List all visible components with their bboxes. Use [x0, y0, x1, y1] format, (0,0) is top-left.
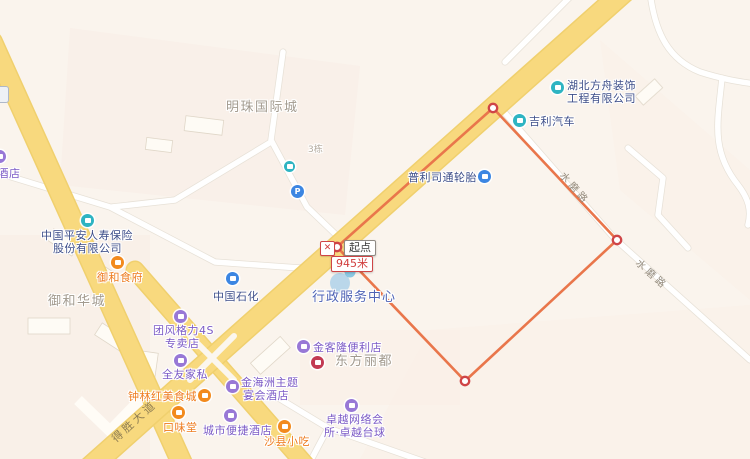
convenience-store-icon	[297, 340, 310, 353]
gas-station-icon	[226, 272, 239, 285]
billiards-icon	[345, 399, 358, 412]
measure-distance-tag: 945米	[331, 256, 373, 272]
furniture-store-icon	[174, 354, 187, 367]
measure-close-button[interactable]: ✕	[320, 241, 335, 256]
poi-dot-icon[interactable]	[284, 161, 295, 172]
food-court-icon	[198, 389, 211, 402]
area-label-building-3: 3栋	[308, 144, 323, 157]
area-label-mingzhu: 明珠国际城	[226, 101, 299, 114]
restaurant-icon	[172, 406, 185, 419]
measure-vertex-2[interactable]	[489, 104, 497, 112]
measure-vertex-4[interactable]	[461, 377, 469, 385]
hotel-icon	[226, 380, 239, 393]
landmark-icon	[311, 356, 324, 369]
finance-icon	[81, 214, 94, 227]
road-shield-icon	[0, 86, 9, 103]
restaurant-icon	[111, 256, 124, 269]
hotel-icon	[224, 409, 237, 422]
area-label-yuhe-huacheng: 御和华城	[48, 295, 106, 308]
store-icon	[174, 310, 187, 323]
map-viewport[interactable]: ✕ 起点 945米 得胜大道 水磨路 水磨路 明珠国际城 御和华城 3栋 湖北方…	[0, 0, 750, 459]
company-icon	[551, 81, 564, 94]
parking-icon[interactable]: P	[291, 185, 304, 198]
snack-icon	[278, 420, 291, 433]
measure-start-tag: 起点	[344, 240, 376, 256]
tire-service-icon	[478, 170, 491, 183]
car-dealer-icon	[513, 114, 526, 127]
measure-vertex-3[interactable]	[613, 236, 621, 244]
